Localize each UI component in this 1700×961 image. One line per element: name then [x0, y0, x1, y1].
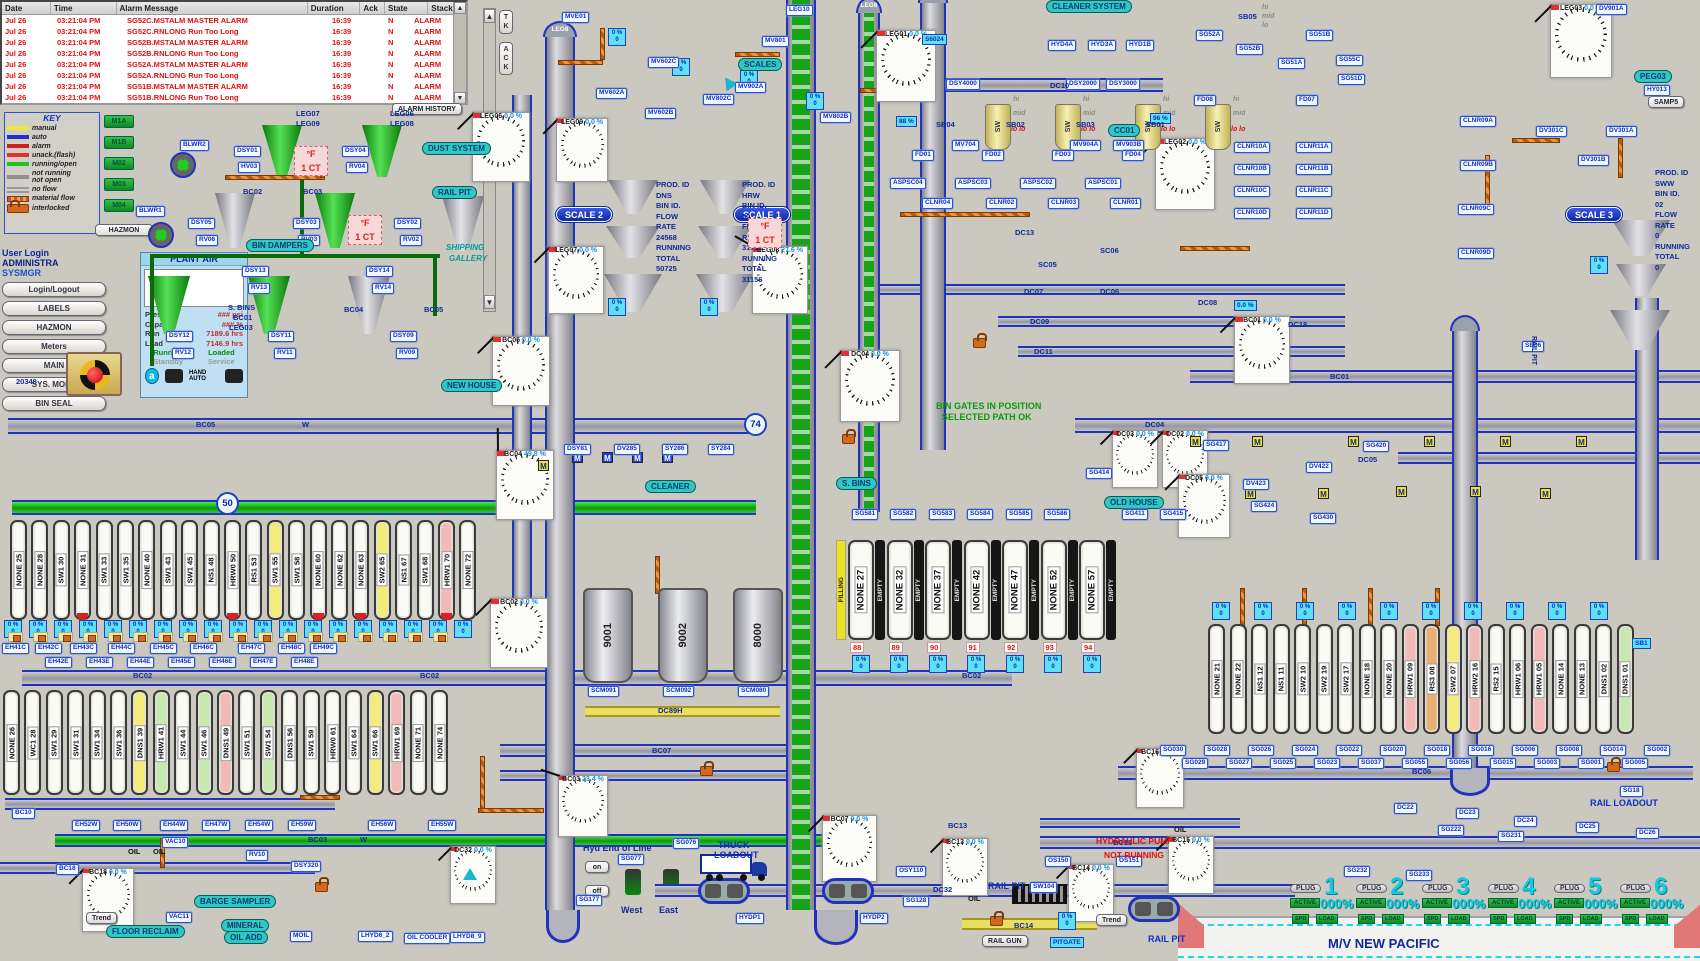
tag-chip[interactable]: DSY320: [291, 861, 321, 872]
storage-bin[interactable]: HRW1 06: [1509, 624, 1526, 734]
interlock-gate-icon[interactable]: [433, 632, 448, 642]
tag-chip[interactable]: BC10: [12, 808, 35, 819]
tag-chip[interactable]: FD03: [1052, 150, 1074, 161]
storage-bin[interactable]: HRW2 16: [1466, 624, 1483, 734]
tag-chip[interactable]: SG585: [1006, 509, 1032, 520]
storage-bin[interactable]: NONE 21: [1208, 624, 1225, 734]
load-button[interactable]: LOAD: [1646, 914, 1668, 924]
region-label[interactable]: CLEANER: [645, 480, 696, 493]
tag-chip[interactable]: RV12: [172, 348, 194, 359]
tag-chip[interactable]: CLNR01: [1110, 198, 1141, 209]
storage-bin[interactable]: SW1 35: [117, 520, 134, 620]
storage-bin[interactable]: DNS1 56: [281, 690, 298, 795]
spd-button[interactable]: SPD: [1292, 914, 1309, 924]
tag-chip[interactable]: FD07: [1296, 95, 1318, 106]
storage-bin[interactable]: SW2 65: [374, 520, 391, 620]
storage-bin[interactable]: NS1 12: [1251, 624, 1268, 734]
tag-chip[interactable]: HY013: [1644, 85, 1670, 96]
tag-chip[interactable]: SG037: [1358, 758, 1384, 769]
storage-bin[interactable]: DNS1 49: [217, 690, 234, 795]
alarm-row[interactable]: Jul 2603:21:04 PMSG52B.RNLONG Run Too Lo…: [2, 48, 466, 59]
active-button[interactable]: ACTIVE: [1422, 898, 1452, 908]
interlock-gate-icon[interactable]: [358, 632, 373, 642]
tag-chip[interactable]: EH43C: [70, 643, 97, 654]
compressor-icon[interactable]: [165, 369, 183, 383]
interlock-gate-icon[interactable]: [308, 632, 323, 642]
storage-bin[interactable]: SW1 44: [174, 690, 191, 795]
mode-button-m1b[interactable]: M1B: [104, 136, 134, 149]
alarm-col-time[interactable]: Time: [51, 2, 117, 14]
motor-marker[interactable]: M: [1348, 436, 1359, 447]
region-label[interactable]: CLEANER SYSTEM: [1046, 0, 1132, 13]
scale-name-pill[interactable]: SCALE 3: [1566, 207, 1622, 222]
storage-bin[interactable]: HRW1 41: [153, 690, 170, 795]
tag-chip[interactable]: SG077: [618, 854, 644, 865]
tag-chip[interactable]: FD04: [1122, 150, 1144, 161]
storage-bin[interactable]: SW1 36: [110, 690, 127, 795]
tag-chip[interactable]: DSY09: [390, 331, 417, 342]
storage-bin[interactable]: WC1 28: [24, 690, 41, 795]
tag-chip[interactable]: SG586: [1044, 509, 1070, 520]
tag-chip[interactable]: DSY02: [394, 218, 421, 229]
alarm-table-rows[interactable]: Jul 2603:21:04 PMSG52C.MSTALM MASTER ALA…: [2, 15, 466, 103]
tag-chip[interactable]: SG056: [1446, 758, 1472, 769]
storage-bin[interactable]: SW1 31: [67, 690, 84, 795]
tag-chip[interactable]: SG55C: [1336, 55, 1363, 66]
tag-chip[interactable]: SG002: [1644, 745, 1670, 756]
tag-chip[interactable]: SG016: [1468, 745, 1494, 756]
mode-button-m02[interactable]: M02: [104, 157, 134, 170]
alarm-row[interactable]: Jul 2603:21:04 PMSG52C.RNLONG Run Too Lo…: [2, 26, 466, 37]
active-button[interactable]: ACTIVE: [1290, 898, 1320, 908]
tag-chip[interactable]: SG581: [852, 509, 878, 520]
tag-chip[interactable]: SG026: [1248, 745, 1274, 756]
tag-chip[interactable]: SW104: [1030, 882, 1057, 893]
tag-chip[interactable]: DV301A: [1606, 126, 1637, 137]
tag-chip[interactable]: SG022: [1336, 745, 1362, 756]
tag-chip[interactable]: EH44W: [160, 820, 188, 831]
tag-chip[interactable]: SG029: [1182, 758, 1208, 769]
alarm-row[interactable]: Jul 2603:21:04 PMSG52A.MSTALM MASTER ALA…: [2, 59, 466, 70]
storage-bin[interactable]: RS3 08: [1423, 624, 1440, 734]
tag-chip[interactable]: SCM080: [738, 686, 769, 697]
tag-chip[interactable]: SG128: [903, 896, 929, 907]
pump-icon[interactable]: [1128, 896, 1180, 922]
tag-chip[interactable]: SG006: [1512, 745, 1538, 756]
tag-chip[interactable]: SG231: [1498, 831, 1524, 842]
storage-bin[interactable]: SW1 34: [89, 690, 106, 795]
interlock-gate-icon[interactable]: [58, 632, 73, 642]
alarm-row[interactable]: Jul 2603:21:04 PMSG52C.MSTALM MASTER ALA…: [2, 15, 466, 26]
nav-button-login-logout[interactable]: Login/Logout: [2, 282, 106, 297]
alarm-col-alarm message[interactable]: Alarm Message: [117, 2, 308, 14]
hyd-on-button[interactable]: on: [585, 861, 609, 873]
tag-chip[interactable]: DV901A: [1596, 4, 1627, 15]
storage-bin[interactable]: NS1 67: [395, 520, 412, 620]
tag-chip[interactable]: BLWR1: [136, 206, 165, 217]
tag-chip[interactable]: CLNR11D: [1296, 208, 1332, 219]
tag-chip[interactable]: SG232: [1344, 866, 1370, 877]
conveyor[interactable]: [1018, 346, 1345, 357]
storage-bin[interactable]: HRW0 61: [324, 690, 341, 795]
storage-bin[interactable]: NONE 40: [138, 520, 155, 620]
tag-chip[interactable]: EH46E: [209, 657, 236, 668]
tag-chip[interactable]: OIL COOLER: [404, 933, 450, 944]
motor-marker[interactable]: M: [1396, 486, 1407, 497]
load-button[interactable]: LOAD: [1448, 914, 1470, 924]
tag-chip[interactable]: EH55W: [428, 820, 456, 831]
tag-chip[interactable]: SG076: [673, 838, 699, 849]
tag-chip[interactable]: DSY05: [188, 218, 215, 229]
conveyor[interactable]: [12, 500, 756, 515]
tag-chip[interactable]: MV801: [762, 36, 789, 47]
spd-button[interactable]: SPD: [1622, 914, 1639, 924]
tag-chip[interactable]: MV704: [952, 140, 979, 151]
region-label[interactable]: OIL ADD: [224, 931, 268, 944]
storage-bin[interactable]: HRW1 69: [388, 690, 405, 795]
storage-bin[interactable]: NONE 60: [310, 520, 327, 620]
storage-bin[interactable]: SW1 58: [288, 520, 305, 620]
storage-bin[interactable]: SW1 29: [46, 690, 63, 795]
tag-chip[interactable]: CLNR11B: [1296, 164, 1332, 175]
mode-button-m04[interactable]: M04: [104, 199, 134, 212]
tag-chip[interactable]: HV03: [238, 162, 260, 173]
hopper[interactable]: [608, 180, 658, 214]
tag-chip[interactable]: EH48C: [278, 643, 305, 654]
storage-bin[interactable]: NONE 32: [887, 540, 913, 640]
interlock-gate-icon[interactable]: [233, 632, 248, 642]
mode-button-m03[interactable]: M03: [104, 178, 134, 191]
interlock-gate-icon[interactable]: [258, 632, 273, 642]
tag-chip[interactable]: ASPSC01: [1085, 178, 1121, 189]
storage-bin[interactable]: DNS1 02: [1595, 624, 1612, 734]
tag-chip[interactable]: DC26: [1636, 828, 1659, 839]
tag-chip[interactable]: MV802B: [820, 112, 851, 123]
tag-chip[interactable]: SCM091: [588, 686, 619, 697]
storage-bin[interactable]: NS1 11: [1273, 624, 1290, 734]
tag-chip[interactable]: SG023: [1314, 758, 1340, 769]
motor-marker[interactable]: M: [1540, 488, 1551, 499]
tag-chip[interactable]: HYD3A: [1088, 40, 1116, 51]
scale-bin[interactable]: 9001: [583, 588, 633, 683]
tag-chip[interactable]: SCM092: [663, 686, 694, 697]
load-button[interactable]: LOAD: [1382, 914, 1404, 924]
tag-chip[interactable]: EH48E: [291, 657, 318, 668]
tag-chip[interactable]: MV602B: [645, 108, 676, 119]
tag-chip[interactable]: CLNR09A: [1460, 116, 1496, 127]
tag-chip[interactable]: RV06: [196, 235, 218, 246]
tag-chip[interactable]: DSY04: [342, 146, 369, 157]
region-label[interactable]: SCALES: [738, 58, 782, 71]
active-button[interactable]: ACTIVE: [1620, 898, 1650, 908]
storage-bin[interactable]: NONE 74: [431, 690, 448, 795]
tag-chip[interactable]: SG51B: [1306, 30, 1333, 41]
region-label[interactable]: CC01: [1108, 124, 1140, 137]
interlock-gate-icon[interactable]: [383, 632, 398, 642]
interlock-gate-icon[interactable]: [8, 632, 23, 642]
motor-marker[interactable]: M: [1470, 486, 1481, 497]
storage-bin[interactable]: NS1 48: [203, 520, 220, 620]
compressor-icon[interactable]: [225, 369, 243, 383]
plug-button[interactable]: PLUG: [1488, 884, 1519, 893]
tag-chip[interactable]: SG420: [1363, 441, 1389, 452]
region-label[interactable]: RAIL PIT: [432, 186, 477, 199]
interlock-gate-icon[interactable]: [133, 632, 148, 642]
tag-chip[interactable]: EH45C: [150, 643, 177, 654]
estop-button[interactable]: [66, 352, 122, 396]
tag-chip[interactable]: DSY3000: [1106, 79, 1140, 90]
tag-chip[interactable]: DSY11: [268, 331, 294, 342]
hyd-west-valve-icon[interactable]: [625, 869, 641, 895]
storage-bin[interactable]: NONE 37: [925, 540, 951, 640]
storage-bin[interactable]: DNS1 01: [1617, 624, 1634, 734]
tag-chip[interactable]: SG024: [1292, 745, 1318, 756]
interlock-gate-icon[interactable]: [83, 632, 98, 642]
motor-marker[interactable]: M: [1424, 436, 1435, 447]
tag-chip[interactable]: CLNR02: [986, 198, 1017, 209]
interlock-gate-icon[interactable]: [183, 632, 198, 642]
tag-chip[interactable]: EH44C: [108, 643, 135, 654]
tag-chip[interactable]: DSY4000: [946, 79, 980, 90]
storage-bin[interactable]: NONE 57: [1079, 540, 1105, 640]
alarm-row[interactable]: Jul 2603:21:04 PMSG52A.RNLONG Run Too Lo…: [2, 70, 466, 81]
tag-chip[interactable]: CLNR09D: [1458, 248, 1494, 259]
tag-chip[interactable]: OS150: [1045, 856, 1071, 867]
stack-button[interactable]: T K: [499, 10, 513, 34]
plug-button[interactable]: PLUG: [1356, 884, 1387, 893]
spd-button[interactable]: SPD: [1556, 914, 1573, 924]
tag-chip[interactable]: EH42C: [35, 643, 62, 654]
tag-chip[interactable]: CLNR10C: [1234, 186, 1270, 197]
tag-chip[interactable]: CLNR03: [1048, 198, 1079, 209]
tag-chip[interactable]: DSY2000: [1066, 79, 1100, 90]
tag-chip[interactable]: MOIL: [290, 931, 312, 942]
storage-bin[interactable]: NONE 18: [1359, 624, 1376, 734]
scale-bin[interactable]: 8000: [733, 588, 783, 683]
storage-bin[interactable]: HRW1 09: [1402, 624, 1419, 734]
command-button[interactable]: SAMP5: [1648, 96, 1684, 108]
interlock-gate-icon[interactable]: [333, 632, 348, 642]
tag-chip[interactable]: EH56W: [368, 820, 396, 831]
tag-chip[interactable]: EH49C: [310, 643, 337, 654]
tag-chip[interactable]: DSY13: [242, 266, 269, 277]
tag-chip[interactable]: VAC11: [166, 912, 192, 923]
motor-marker[interactable]: M: [1190, 436, 1201, 447]
tag-chip[interactable]: SG001: [1578, 758, 1604, 769]
tag-chip[interactable]: DSY01: [234, 146, 261, 157]
storage-bin[interactable]: SW1 55: [267, 520, 284, 620]
tag-chip[interactable]: SG414: [1086, 468, 1112, 479]
conveyor[interactable]: [0, 862, 315, 874]
region-label[interactable]: PEG03: [1634, 70, 1672, 83]
storage-bin[interactable]: NONE 47: [1002, 540, 1028, 640]
tag-chip[interactable]: RV11: [274, 348, 296, 359]
storage-bin[interactable]: NONE 28: [31, 520, 48, 620]
tag-chip[interactable]: SG027: [1226, 758, 1252, 769]
storage-bin[interactable]: NONE 14: [1552, 624, 1569, 734]
storage-bin[interactable]: NONE 13: [1574, 624, 1591, 734]
nav-button-hazmon[interactable]: HAZMON: [2, 320, 106, 335]
surge-bin[interactable]: SW: [1205, 104, 1231, 150]
tag-chip[interactable]: SG417: [1203, 440, 1229, 451]
tag-chip[interactable]: RV09: [396, 348, 418, 359]
storage-bin[interactable]: NONE 71: [410, 690, 427, 795]
storage-bin[interactable]: NONE 27: [848, 540, 874, 640]
tag-chip[interactable]: MVE01: [562, 12, 589, 23]
pump-icon[interactable]: [698, 878, 750, 904]
tag-chip[interactable]: EH44E: [127, 657, 154, 668]
region-label[interactable]: DUST SYSTEM: [422, 142, 491, 155]
tag-chip[interactable]: SG584: [967, 509, 993, 520]
tag-chip[interactable]: EH59W: [288, 820, 316, 831]
tag-chip[interactable]: DSY03: [293, 218, 320, 229]
tag-chip[interactable]: SG51A: [1278, 58, 1305, 69]
region-label[interactable]: S. BINS: [836, 477, 877, 490]
tag-chip[interactable]: DSY12: [166, 331, 193, 342]
tag-chip[interactable]: EH45E: [168, 657, 195, 668]
alarm-row[interactable]: Jul 2603:21:04 PMSG51B.RNLONG Run Too Lo…: [2, 92, 466, 103]
nav-button-bin-seal[interactable]: BIN SEAL: [2, 396, 106, 411]
tag-chip[interactable]: CLNR10D: [1234, 208, 1270, 219]
hand-auto-toggle[interactable]: HAND AUTO: [189, 370, 219, 382]
tag-chip[interactable]: LHYD8_9: [450, 932, 485, 943]
tag-chip[interactable]: MV602A: [596, 88, 627, 99]
mode-button-m1a[interactable]: M1A: [104, 115, 134, 128]
tag-chip[interactable]: SG430: [1310, 513, 1336, 524]
conveyor[interactable]: [1040, 818, 1240, 828]
value-chip[interactable]: SB1: [1632, 638, 1651, 649]
value-chip[interactable]: 0.0 %: [1234, 300, 1257, 311]
storage-bin[interactable]: SW1 46: [196, 690, 213, 795]
tag-chip[interactable]: CLNR11C: [1296, 186, 1332, 197]
hopper[interactable]: [1610, 310, 1670, 350]
tag-chip[interactable]: SG003: [1534, 758, 1560, 769]
tag-chip[interactable]: HYD1B: [1126, 40, 1154, 51]
storage-bin[interactable]: SW1 59: [303, 690, 320, 795]
tag-chip[interactable]: SG008: [1556, 745, 1582, 756]
tag-chip[interactable]: DV285: [614, 444, 640, 455]
tag-chip[interactable]: RV02: [400, 235, 422, 246]
conveyor[interactable]: [8, 418, 760, 434]
conveyor[interactable]: [5, 798, 335, 810]
tag-chip[interactable]: CLNR10B: [1234, 164, 1270, 175]
storage-bin[interactable]: SW1 45: [181, 520, 198, 620]
tag-chip[interactable]: CLNR09C: [1458, 204, 1494, 215]
tag-chip[interactable]: SG583: [929, 509, 955, 520]
region-label[interactable]: BIN DAMPERS: [246, 239, 314, 252]
tag-chip[interactable]: CLNR09B: [1460, 160, 1496, 171]
tag-chip[interactable]: FD01: [912, 150, 934, 161]
storage-bin[interactable]: SW2 17: [1337, 624, 1354, 734]
tag-chip[interactable]: SG028: [1204, 745, 1230, 756]
tag-chip[interactable]: DSY81: [564, 444, 591, 455]
tag-chip[interactable]: BLWR2: [180, 140, 209, 151]
nav-button-labels[interactable]: LABELS: [2, 301, 106, 316]
tag-chip[interactable]: DV301B: [1578, 155, 1609, 166]
storage-bin[interactable]: NONE 26: [3, 690, 20, 795]
tag-chip[interactable]: FD02: [982, 150, 1004, 161]
storage-bin[interactable]: NONE 52: [1041, 540, 1067, 640]
storage-bin[interactable]: RS2 15: [1488, 624, 1505, 734]
tag-chip[interactable]: EH43E: [86, 657, 113, 668]
storage-bin[interactable]: HRW1 70: [438, 520, 455, 620]
alarm-col-state[interactable]: State: [385, 2, 428, 14]
tag-chip[interactable]: LEG10: [786, 5, 813, 16]
storage-bin[interactable]: NONE 20: [1380, 624, 1397, 734]
conveyor-number-badge[interactable]: 74: [744, 413, 767, 436]
plug-button[interactable]: PLUG: [1620, 884, 1651, 893]
tag-chip[interactable]: SG014: [1600, 745, 1626, 756]
scale-name-pill[interactable]: SCALE 2: [556, 207, 612, 222]
tag-chip[interactable]: FD08: [1194, 95, 1216, 106]
command-button[interactable]: RAIL GUN: [982, 935, 1028, 947]
storage-bin[interactable]: NONE 72: [459, 520, 476, 620]
tag-chip[interactable]: SY284: [708, 444, 734, 455]
tag-chip[interactable]: SG51D: [1338, 74, 1365, 85]
hazmon-button[interactable]: HAZMON: [95, 224, 153, 236]
interlock-gate-icon[interactable]: [108, 632, 123, 642]
region-label[interactable]: OLD HOUSE: [1104, 496, 1164, 509]
plug-button[interactable]: PLUG: [1290, 884, 1321, 893]
tag-chip[interactable]: SG233: [1406, 870, 1432, 881]
ack-button[interactable]: A C K: [499, 42, 513, 75]
alarm-col-date[interactable]: Date: [2, 2, 51, 14]
alarm-table[interactable]: DateTimeAlarm MessageDurationAckStateSta…: [0, 0, 468, 105]
tag-chip[interactable]: MV602C: [648, 57, 679, 68]
tag-chip[interactable]: ASPSC03: [955, 178, 991, 189]
active-button[interactable]: ACTIVE: [1488, 898, 1518, 908]
plug-button[interactable]: PLUG: [1554, 884, 1585, 893]
tag-chip[interactable]: ASPSC04: [890, 178, 926, 189]
tag-chip[interactable]: EH41C: [2, 643, 29, 654]
storage-bin[interactable]: NONE 25: [10, 520, 27, 620]
interlock-gate-icon[interactable]: [208, 632, 223, 642]
storage-bin[interactable]: NONE 31: [74, 520, 91, 620]
tag-chip[interactable]: EH42E: [45, 657, 72, 668]
alarm-row[interactable]: Jul 2603:21:04 PMSG52B.MSTALM MASTER ALA…: [2, 37, 466, 48]
region-label[interactable]: BARGE SAMPLER: [194, 895, 276, 908]
storage-bin[interactable]: NONE 63: [352, 520, 369, 620]
tag-chip[interactable]: CLNR10A: [1234, 142, 1270, 153]
storage-bin[interactable]: NONE 42: [964, 540, 990, 640]
scroll-up-icon[interactable]: ▲: [484, 9, 495, 23]
motor-marker[interactable]: M: [1245, 488, 1256, 499]
scroll-up-icon[interactable]: ▲: [454, 2, 466, 14]
value-chip[interactable]: 88 %: [896, 116, 917, 127]
auto-mode-icon[interactable]: a: [145, 368, 159, 384]
tag-chip[interactable]: DV422: [1306, 462, 1332, 473]
tag-chip[interactable]: SG582: [890, 509, 916, 520]
motor-marker[interactable]: M: [1576, 436, 1587, 447]
motor-marker[interactable]: M: [1500, 436, 1511, 447]
spd-button[interactable]: SPD: [1424, 914, 1441, 924]
storage-bin[interactable]: SW1 51: [238, 690, 255, 795]
tag-chip[interactable]: SG18: [1620, 786, 1643, 797]
blower-icon[interactable]: [170, 152, 196, 178]
storage-bin[interactable]: SW1 66: [367, 690, 384, 795]
storage-bin[interactable]: SW1 68: [417, 520, 434, 620]
scroll-track[interactable]: [454, 14, 466, 92]
spd-button[interactable]: SPD: [1490, 914, 1507, 924]
load-button[interactable]: LOAD: [1316, 914, 1338, 924]
storage-bin[interactable]: SW2 19: [1316, 624, 1333, 734]
storage-bin[interactable]: SW2 07: [1445, 624, 1462, 734]
tag-chip[interactable]: DV423: [1243, 479, 1269, 490]
tag-chip[interactable]: OSY110: [896, 866, 926, 877]
active-button[interactable]: ACTIVE: [1554, 898, 1584, 908]
tag-chip[interactable]: CLNR04: [922, 198, 953, 209]
tag-chip[interactable]: MV903B: [1113, 140, 1144, 151]
